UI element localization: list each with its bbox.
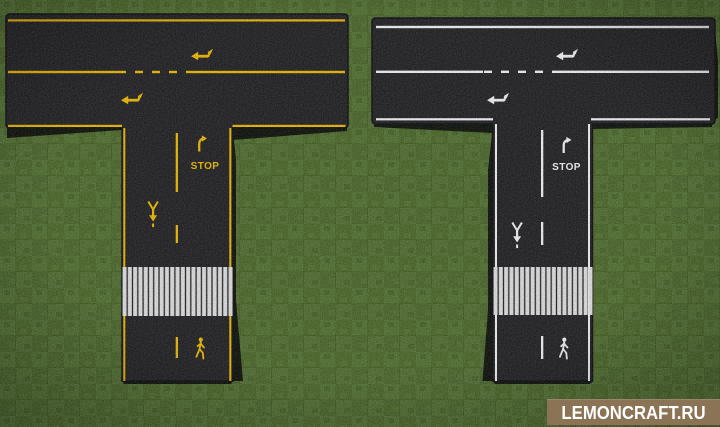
vignette [0, 0, 720, 427]
scene: STOP STOP [0, 0, 720, 427]
scene-canvas: STOP STOP [0, 0, 720, 427]
minecraft-road-screenshot: STOP STOP [0, 0, 720, 427]
watermark-text: LEMONCRAFT.RU [561, 400, 705, 426]
watermark-banner: LEMONCRAFT.RU [547, 399, 720, 425]
